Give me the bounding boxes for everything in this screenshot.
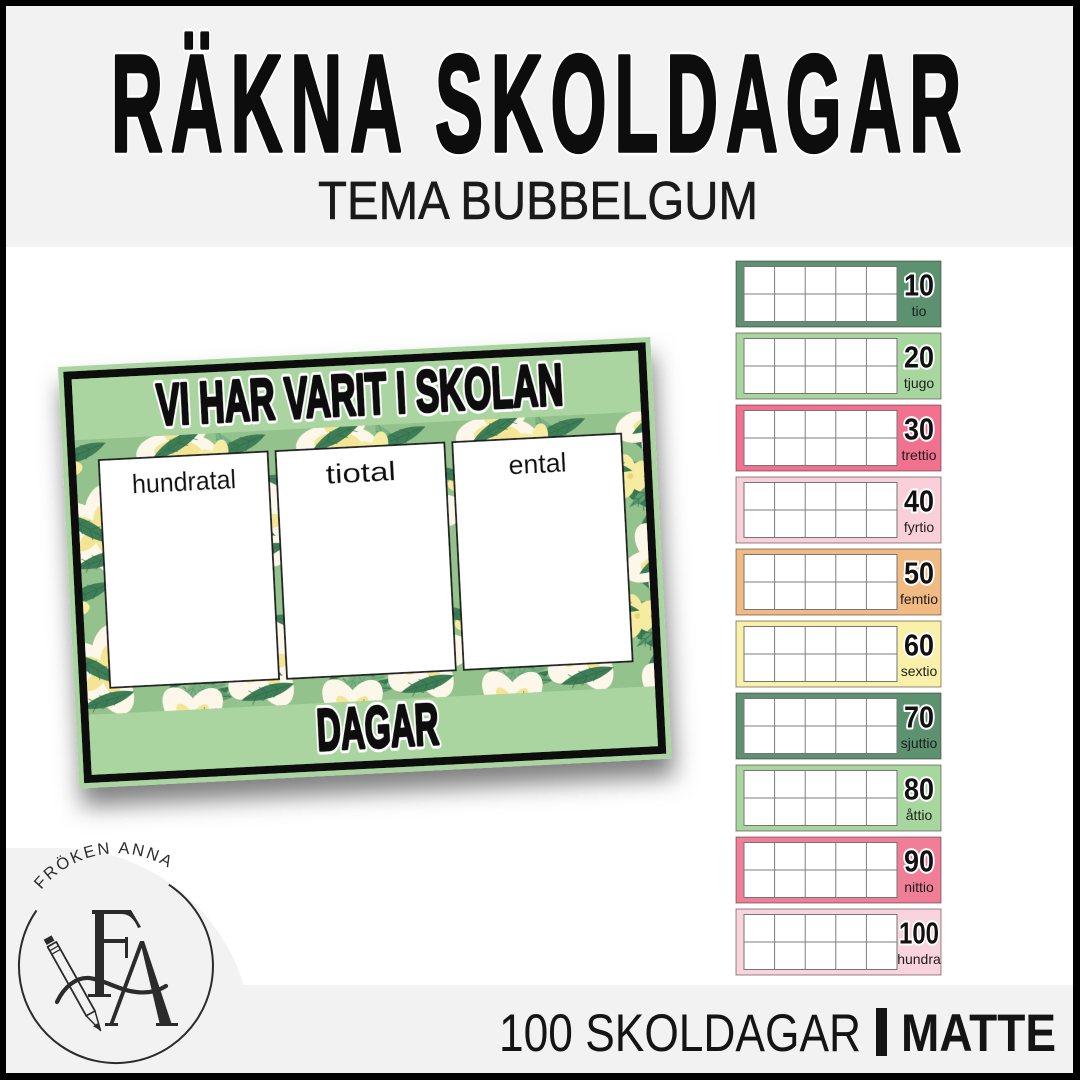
svg-text:tjugo: tjugo [904, 375, 935, 391]
svg-text:90: 90 [904, 844, 934, 879]
svg-text:50: 50 [904, 556, 934, 591]
svg-text:40: 40 [904, 484, 934, 519]
svg-text:80: 80 [904, 772, 934, 807]
svg-text:100 SKOLDAGAR: 100 SKOLDAGAR [499, 1004, 861, 1063]
svg-text:fyrtio: fyrtio [904, 519, 935, 535]
svg-text:60: 60 [904, 628, 934, 663]
svg-text:RÄKNA SKOLDAGAR: RÄKNA SKOLDAGAR [111, 27, 969, 181]
svg-text:100: 100 [899, 916, 939, 951]
svg-text:20: 20 [904, 340, 934, 375]
svg-text:sextio: sextio [901, 663, 938, 679]
svg-text:DAGAR: DAGAR [315, 692, 440, 763]
svg-text:hundratal: hundratal [131, 464, 236, 499]
svg-text:åttio: åttio [906, 807, 933, 823]
svg-text:tiotal: tiotal [325, 456, 396, 490]
svg-text:MATTE: MATTE [901, 1004, 1056, 1063]
svg-text:70: 70 [904, 700, 934, 735]
svg-text:femtio: femtio [900, 591, 938, 607]
svg-text:10: 10 [904, 268, 934, 303]
svg-text:30: 30 [904, 412, 934, 447]
svg-text:TEMA BUBBELGUM: TEMA BUBBELGUM [318, 171, 758, 231]
svg-text:hundra: hundra [897, 951, 941, 967]
svg-text:trettio: trettio [901, 447, 936, 463]
svg-text:ental: ental [508, 447, 567, 480]
svg-text:nittio: nittio [904, 879, 934, 895]
svg-text:sjuttio: sjuttio [901, 735, 938, 751]
svg-text:tio: tio [912, 303, 927, 319]
